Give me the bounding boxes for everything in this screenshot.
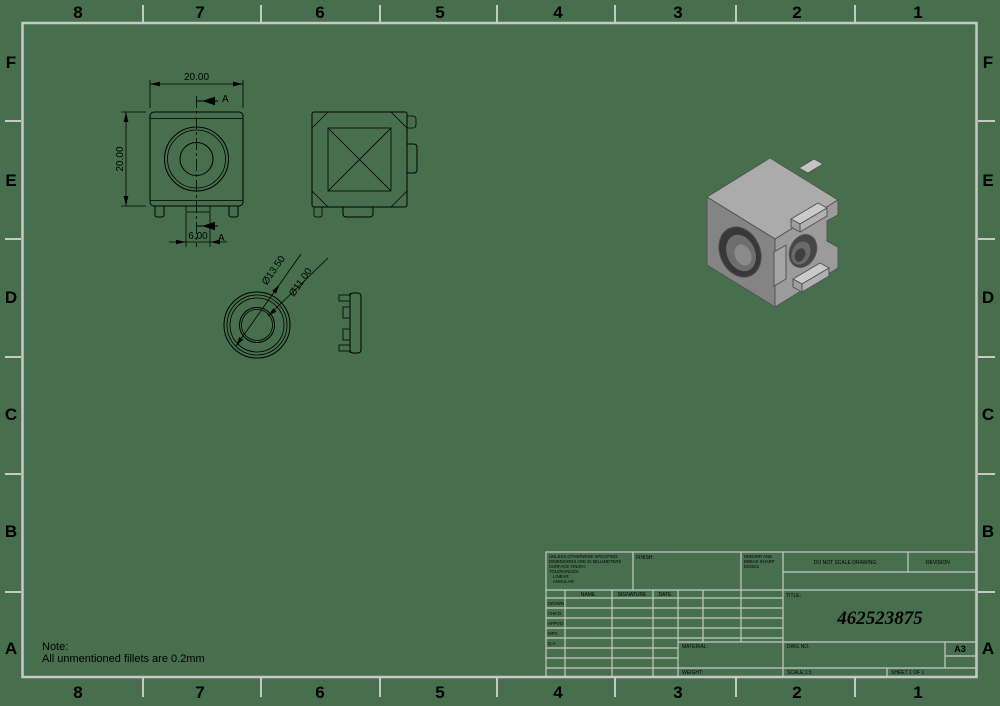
finish-label: FINISH: [636, 555, 654, 561]
zone-row-right: E [982, 171, 993, 190]
ring-detail-view: Ø13.50 Ø11.00 [224, 254, 328, 358]
zone-col-bottom: 4 [553, 683, 563, 702]
note-line-1: Note: [42, 641, 68, 653]
zone-row-left: C [5, 405, 17, 424]
dim-height: 20.00 [115, 112, 146, 206]
ring-side-view [339, 293, 361, 353]
zone-row-right: A [982, 639, 994, 658]
title-value: 462523875 [836, 608, 923, 629]
do-not-scale-label: DO NOT SCALE DRAWING [814, 560, 877, 566]
zone-row-left: B [5, 522, 17, 541]
iso-top-tab [799, 159, 823, 173]
zone-col-top: 6 [315, 3, 324, 22]
zone-col-top: 3 [673, 3, 682, 22]
section-arrow-bottom [202, 222, 215, 230]
zone-col-top: 8 [73, 3, 82, 22]
zone-col-bottom: 8 [73, 683, 82, 702]
section-bottom-left-foot [314, 207, 322, 217]
zone-row-left: A [5, 639, 17, 658]
row-chkd: CHK'D [548, 611, 561, 616]
ring-inner-dia-text: Ø11.00 [287, 266, 315, 299]
zone-col-bottom: 3 [673, 683, 682, 702]
drawing-note: Note: All unmentioned fillets are 0.2mm [42, 641, 205, 665]
front-foot-left [155, 206, 164, 217]
zone-ticks [5, 5, 995, 697]
zone-col-bottom: 6 [315, 683, 324, 702]
drawing-sheet: 8 7 6 5 4 3 2 1 8 7 6 5 4 3 2 1 F E D C … [0, 0, 1000, 706]
zone-row-right: C [982, 405, 994, 424]
zone-row-left: E [5, 171, 16, 190]
paper-size-label: A3 [954, 644, 966, 654]
ring-outer-dia-text: Ø13.50 [260, 254, 288, 288]
section-view [312, 112, 417, 217]
sheet-label: SHEET 1 OF 1 [891, 670, 924, 676]
dim-width-text: 20.00 [184, 72, 209, 83]
dwg-no-label: DWG NO. [787, 644, 810, 650]
col-signature: SIGNATURE [618, 592, 647, 598]
scale-label: SCALE:1:1 [787, 670, 812, 676]
iso-side-tab [774, 245, 786, 286]
row-qa: Q.A [548, 641, 556, 646]
title-label: TITLE: [786, 593, 801, 599]
col-name: NAME [581, 592, 596, 598]
zone-row-right: D [982, 288, 994, 307]
zone-col-top: 7 [195, 3, 204, 22]
section-arrow-top [202, 97, 215, 105]
dim-foot: 6.00 [169, 212, 227, 247]
front-center-tab [186, 206, 210, 212]
zone-col-bottom: 1 [913, 683, 922, 702]
row-appvd: APPV'D [548, 621, 563, 626]
zone-col-bottom: 5 [435, 683, 444, 702]
tolerance-line: ANGULAR: [553, 579, 575, 584]
zone-row-left: D [5, 288, 17, 307]
dim-height-text: 20.00 [115, 146, 126, 171]
section-top-right-ear [407, 116, 416, 128]
front-foot-right [229, 206, 238, 217]
section-right-tab [407, 144, 417, 173]
sheet-frame: 8 7 6 5 4 3 2 1 8 7 6 5 4 3 2 1 F E D C … [5, 3, 995, 702]
zone-col-top: 5 [435, 3, 444, 22]
row-mfg: MFG [548, 631, 558, 636]
zone-row-left: F [6, 53, 16, 72]
col-date: DATE [659, 592, 673, 598]
material-label: MATERIAL: [682, 644, 708, 650]
zone-labels: 8 7 6 5 4 3 2 1 8 7 6 5 4 3 2 1 F E D C … [5, 3, 994, 702]
title-block: UNLESS OTHERWISE SPECIFIED: DIMENSIONS A… [546, 552, 976, 677]
zone-col-top: 2 [792, 3, 801, 22]
inner-border [23, 23, 977, 677]
revision-label: REVISION [926, 560, 950, 566]
zone-col-top: 4 [553, 3, 563, 22]
dim-foot-text: 6.00 [188, 231, 208, 242]
weight-label: WEIGHT: [682, 670, 703, 676]
section-label-top: A [222, 94, 229, 105]
zone-row-right: B [982, 522, 994, 541]
iso-view [707, 158, 838, 307]
row-drawn: DRAWN [548, 601, 564, 606]
deburr-line: EDGES [744, 564, 759, 569]
section-bottom-tab [343, 207, 373, 217]
note-line-2: All unmentioned fillets are 0.2mm [42, 653, 205, 665]
front-view: A A 20.00 20.00 6.00 [115, 72, 243, 247]
zone-col-bottom: 7 [195, 683, 204, 702]
zone-col-top: 1 [913, 3, 922, 22]
zone-col-bottom: 2 [792, 683, 801, 702]
zone-row-right: F [983, 53, 993, 72]
